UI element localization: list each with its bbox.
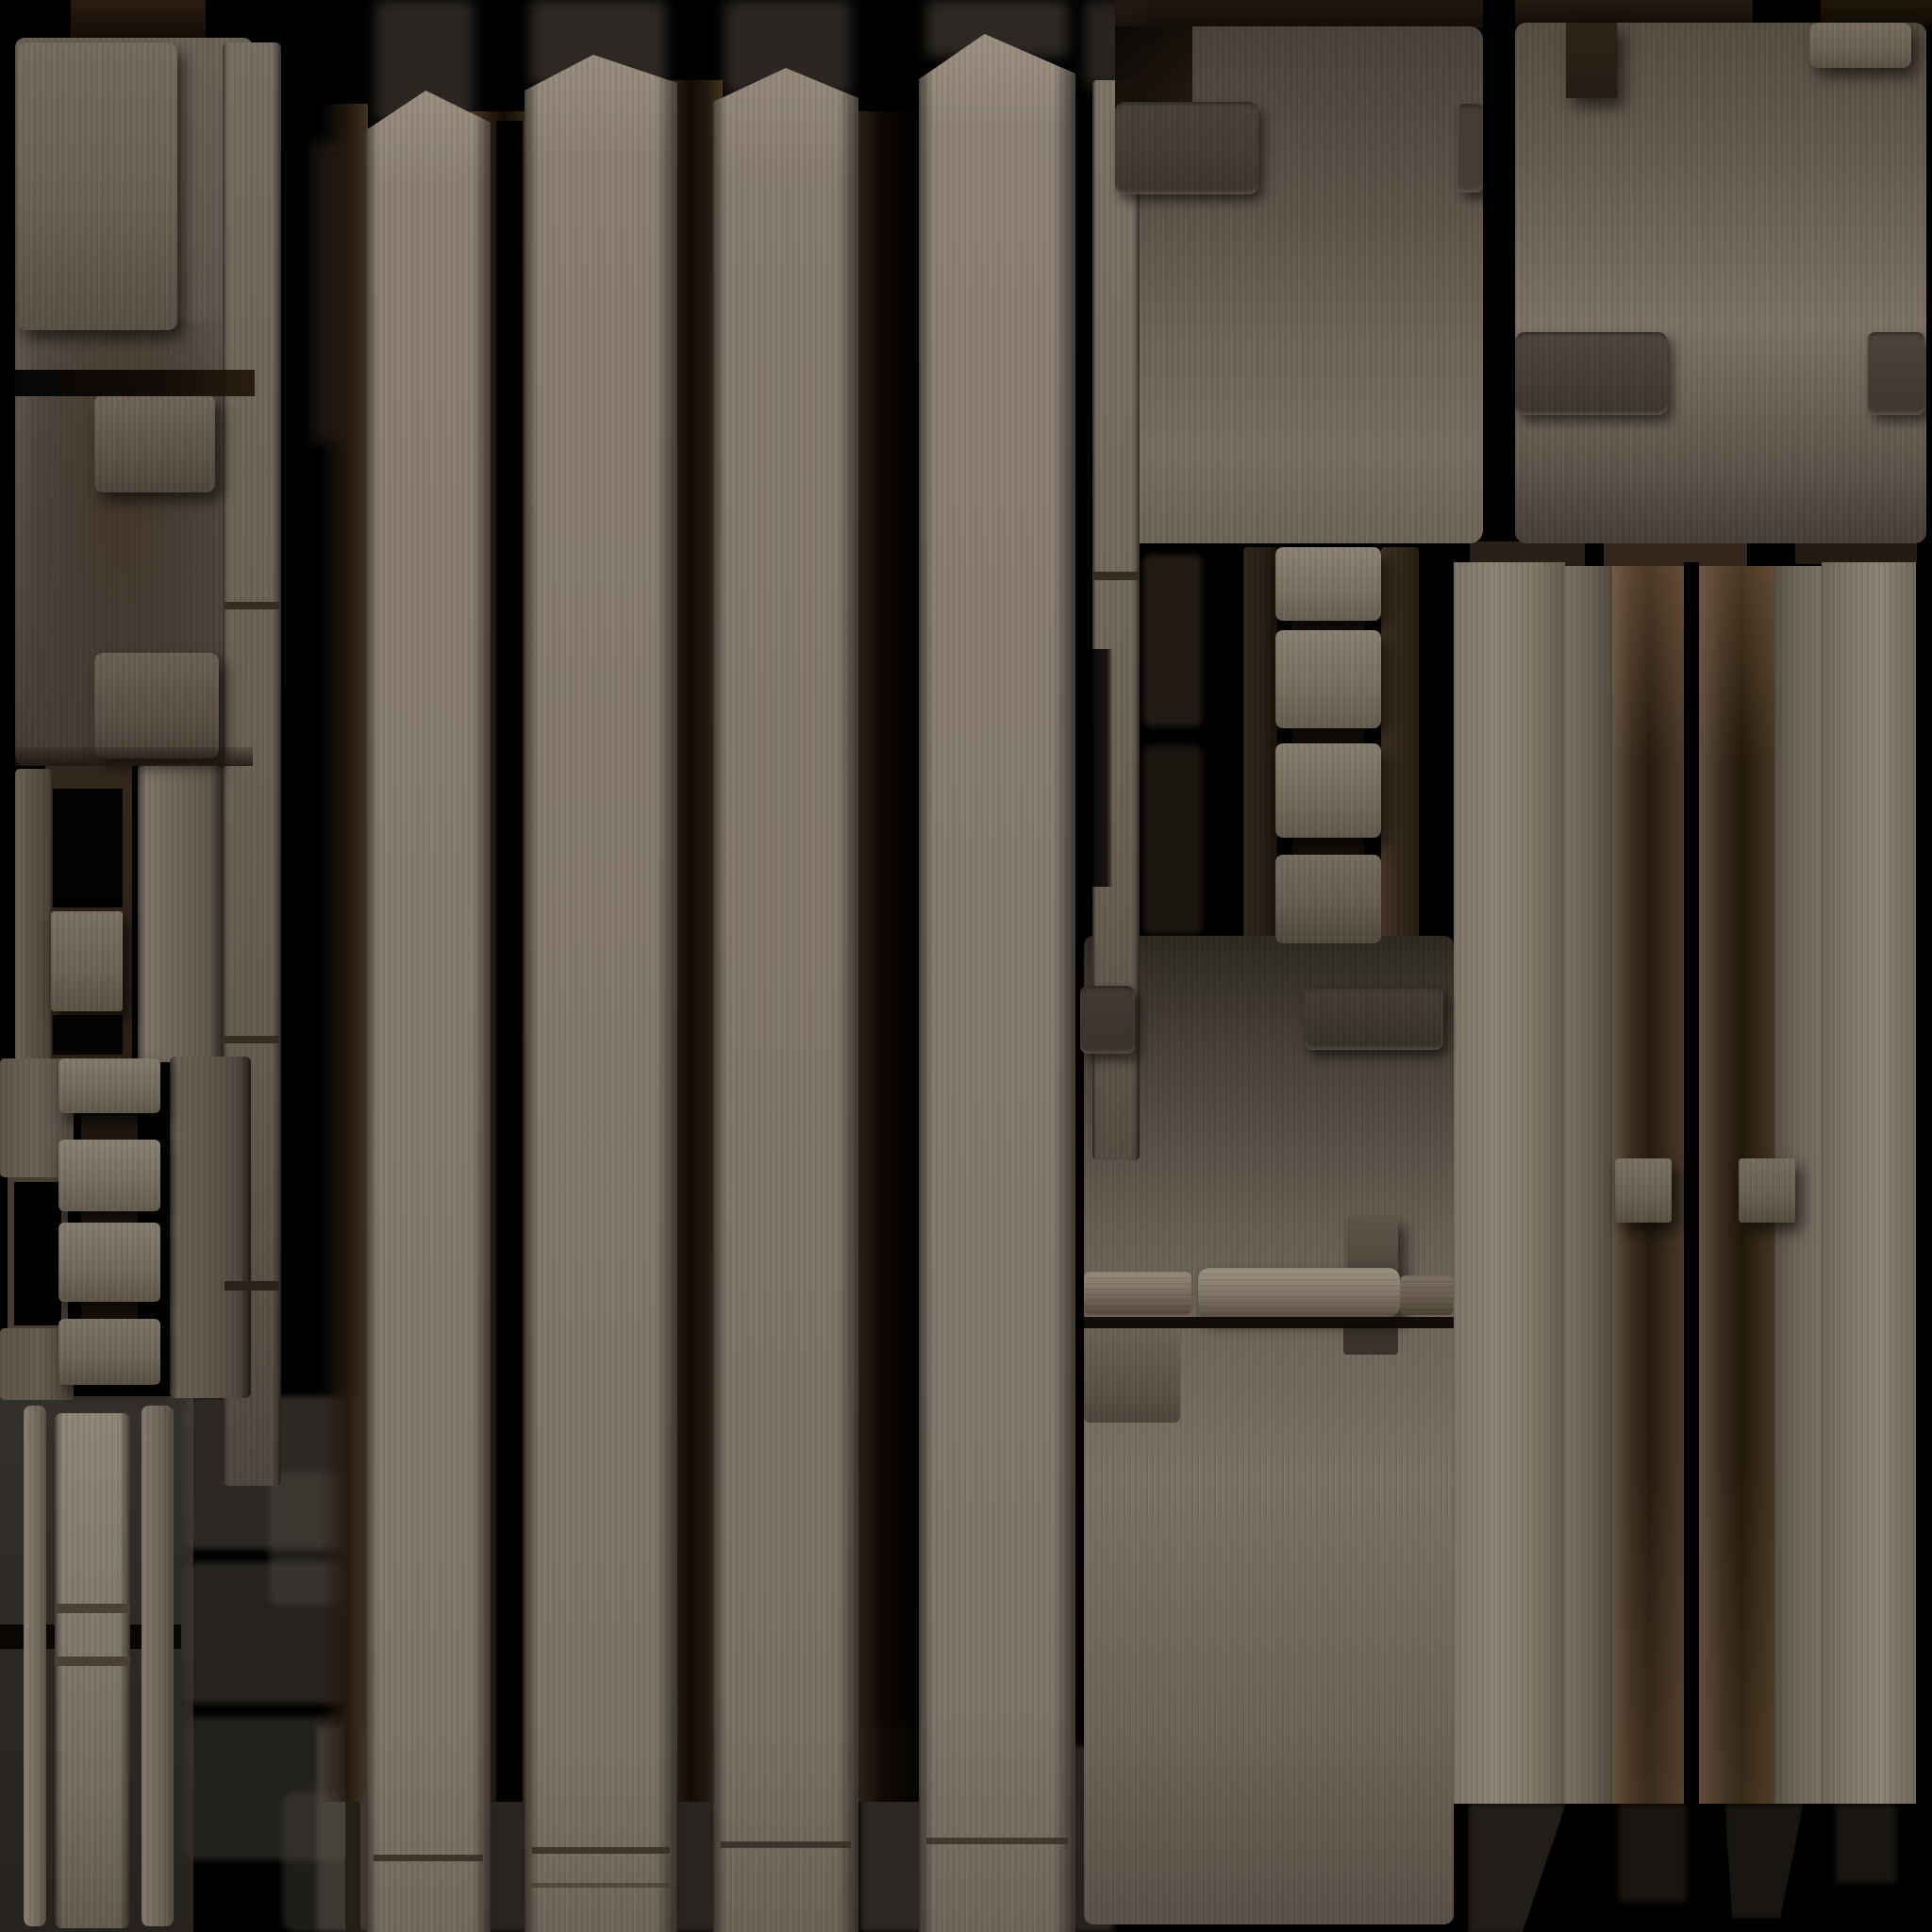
rb-patch-left-2	[1084, 1328, 1180, 1423]
rp-foot-wedge-2	[1619, 1804, 1687, 1902]
c-satellite-notch	[1092, 649, 1113, 887]
ladder-hole-top	[53, 789, 123, 908]
m-top-cap	[1115, 0, 1483, 28]
bl-bar-right	[142, 1406, 174, 1926]
ladder-right-rail	[138, 764, 223, 1062]
r-notch-block	[1566, 23, 1617, 98]
ml-block-1	[1275, 547, 1381, 621]
ladder-rung	[51, 911, 123, 1011]
rp-foot-wedge-1	[1468, 1804, 1566, 1932]
c-foot-seam-4	[926, 1838, 1068, 1844]
ml-gap-3	[1292, 838, 1364, 855]
ml-block-2	[1275, 630, 1381, 728]
ladder-left-rail	[15, 769, 51, 1061]
bl-center-seam-2	[55, 1657, 130, 1666]
rb-rail-right	[1400, 1275, 1454, 1315]
chain-block-2	[58, 1140, 160, 1211]
left-mid-patch-2	[94, 653, 219, 758]
chain-block-3	[58, 1223, 160, 1302]
rp-plank-a	[1454, 562, 1565, 1804]
rp-foot-wedge-3	[1724, 1804, 1804, 1919]
rp-block-2	[1739, 1158, 1795, 1223]
c-satellite-seam	[1092, 572, 1140, 580]
ml-block-3	[1275, 743, 1381, 838]
bl-bar-center	[55, 1413, 130, 1928]
ml-sil-2	[1143, 745, 1202, 934]
c-gap-3-4-shadow	[851, 111, 923, 1802]
rb-block-mid-right	[1347, 1217, 1398, 1275]
ml-block-4	[1275, 855, 1381, 943]
c-plank-2	[525, 55, 677, 1932]
chain-link-1	[81, 1115, 138, 1140]
ladder-hole-bottom	[53, 1015, 123, 1055]
left-top-dark-strip	[71, 0, 206, 42]
rp-block-1	[1615, 1158, 1672, 1223]
c-slit-1-2	[496, 121, 523, 1802]
left-edge-strip-seam-3	[225, 1281, 279, 1291]
left-edge-strip-seam-2	[225, 1036, 279, 1043]
ml-left-rail	[1243, 547, 1277, 943]
rp-foot-wedge-4	[1836, 1804, 1896, 1883]
c-plank-1	[366, 91, 491, 1932]
rb-patch-left-top	[1080, 986, 1135, 1054]
c-gap-left-shadow	[321, 104, 368, 1802]
r-patch-bottom-left	[1515, 332, 1668, 415]
left-top-patch	[17, 42, 177, 330]
left-gap-slit	[13, 370, 255, 396]
m-patch-left	[1115, 102, 1258, 194]
rp-slit	[1684, 562, 1699, 1804]
chain-right-rail	[170, 1057, 251, 1398]
r-top-right-bar	[1809, 23, 1911, 68]
r-slab	[1515, 23, 1926, 543]
ml-sil-1	[1143, 555, 1202, 726]
left-mid-patch-1	[94, 394, 215, 492]
rp-plank-b	[1822, 562, 1916, 1804]
ml-gap-2	[1292, 728, 1364, 743]
texture-atlas-canvas	[0, 0, 1932, 1932]
m-notch-top-left	[1115, 26, 1192, 109]
ml-right-rail	[1381, 547, 1419, 943]
chain-block-1	[58, 1058, 160, 1113]
bl-center-seam-1	[55, 1604, 130, 1613]
c-plank-3	[713, 68, 858, 1932]
rb-gap-under-rail	[1084, 1317, 1454, 1328]
bl-bar-left	[24, 1406, 46, 1926]
left-edge-strip-seam-1	[225, 602, 279, 609]
rb-rail-mid	[1198, 1268, 1400, 1317]
c-foot-seam-3	[721, 1841, 851, 1848]
rb-patch-top-right	[1304, 986, 1443, 1050]
chain-link-3	[81, 1302, 138, 1321]
rp-strip-a	[1565, 566, 1612, 1804]
c-plank-4	[919, 34, 1075, 1932]
rp-cap-3	[1795, 541, 1917, 564]
c-foot-seam-2	[532, 1847, 670, 1854]
c-foot-seam-2b	[532, 1883, 670, 1888]
m-patch-right	[1458, 104, 1483, 192]
chain-block-4	[58, 1319, 160, 1385]
rb-rail-left	[1084, 1272, 1191, 1315]
c-foot-seam-1	[374, 1855, 483, 1861]
r-patch-right	[1868, 332, 1924, 415]
left-slab-bottom-shadow	[15, 747, 253, 766]
